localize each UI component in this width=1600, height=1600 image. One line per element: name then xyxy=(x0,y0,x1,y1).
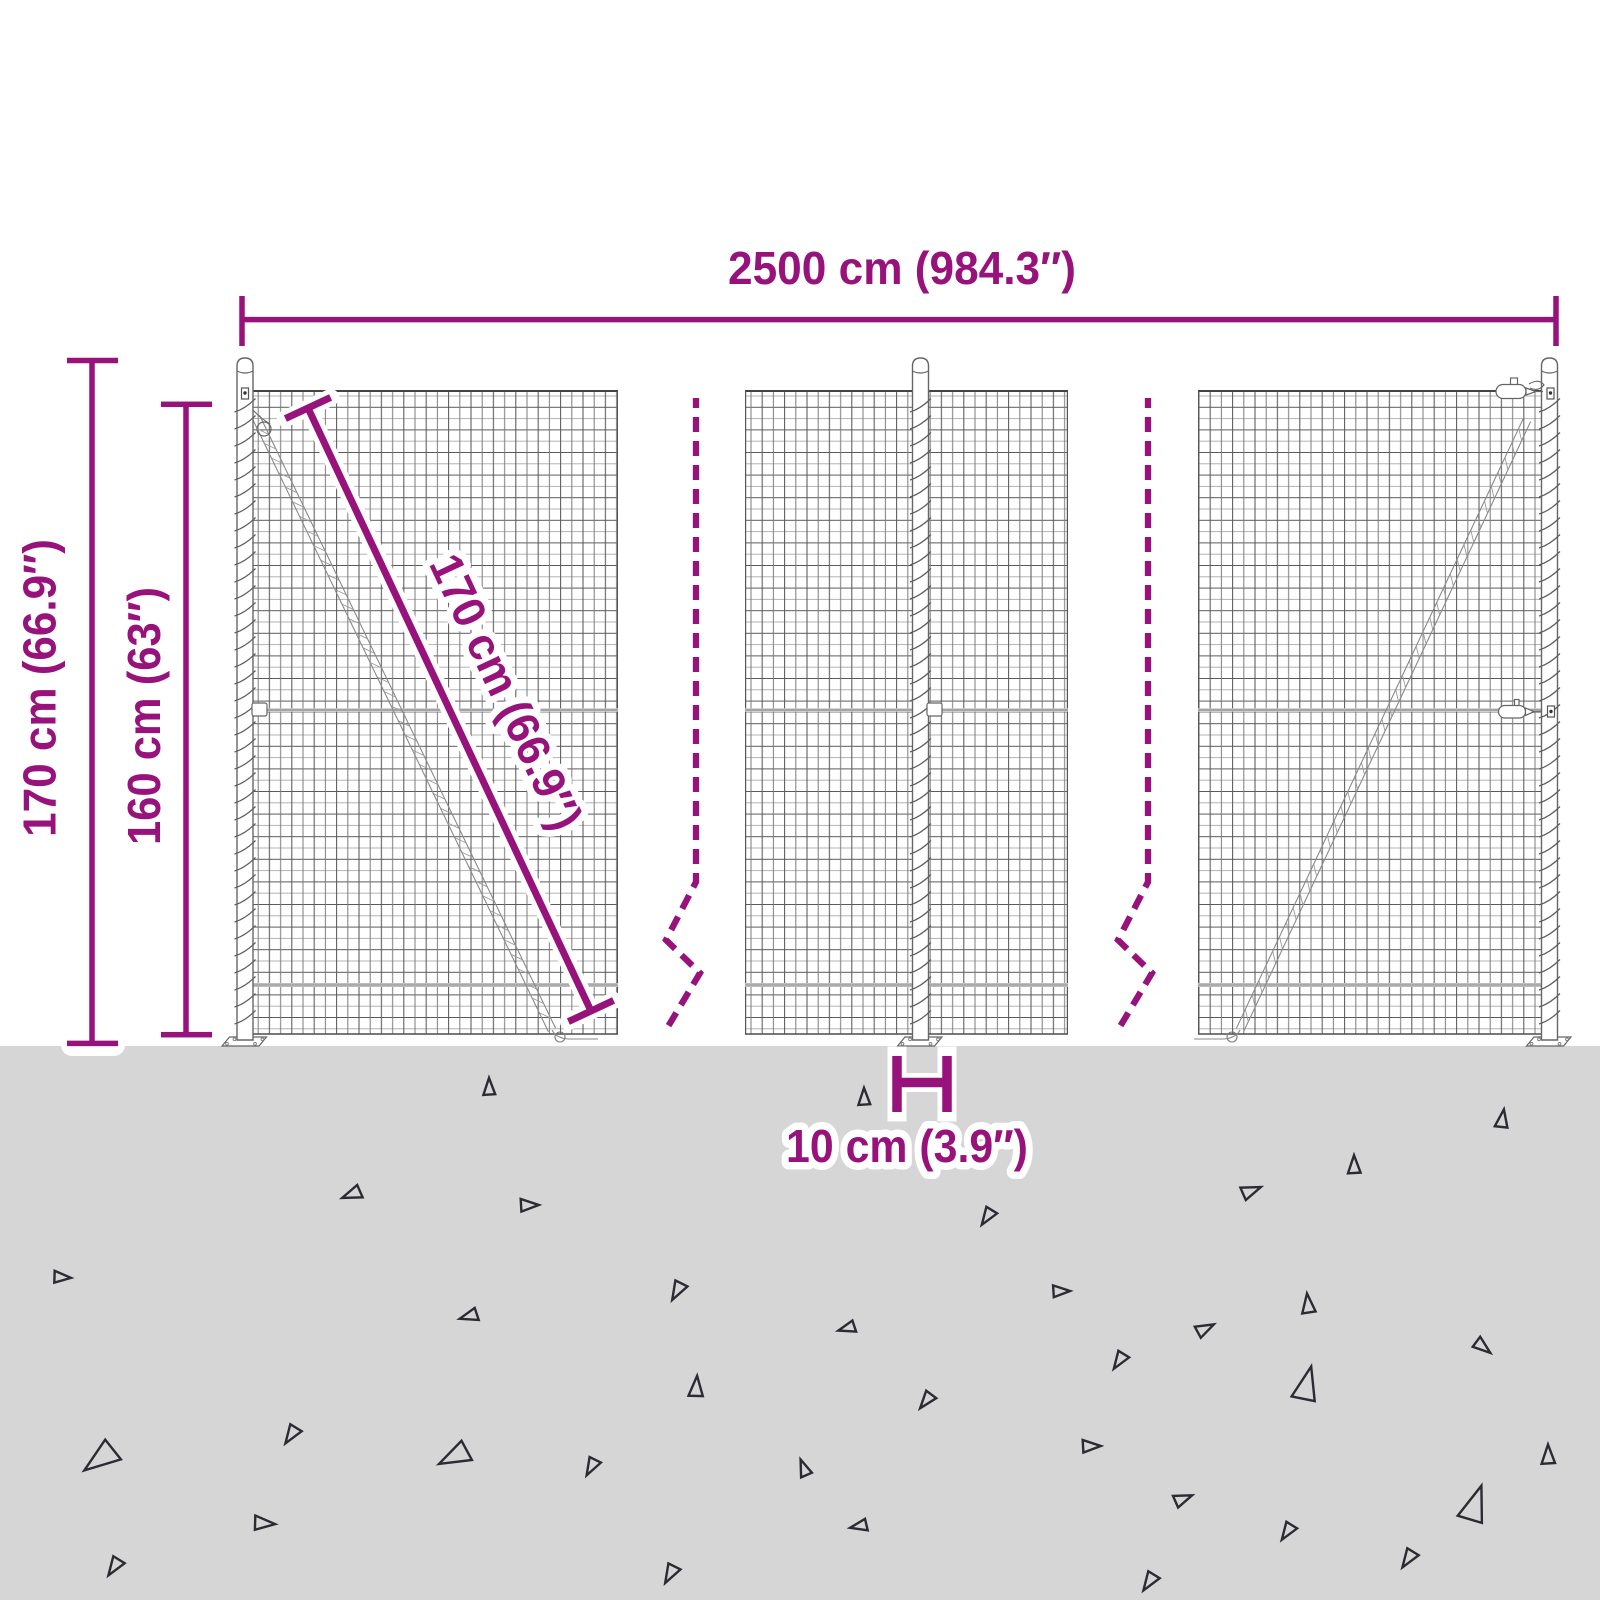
svg-text:2500 cm (984.3″): 2500 cm (984.3″) xyxy=(728,242,1076,294)
svg-text:160 cm (63″): 160 cm (63″) xyxy=(119,587,170,845)
svg-text:170 cm (66.9″): 170 cm (66.9″) xyxy=(14,539,66,837)
svg-text:10 cm (3.9″): 10 cm (3.9″) xyxy=(786,1122,1028,1173)
